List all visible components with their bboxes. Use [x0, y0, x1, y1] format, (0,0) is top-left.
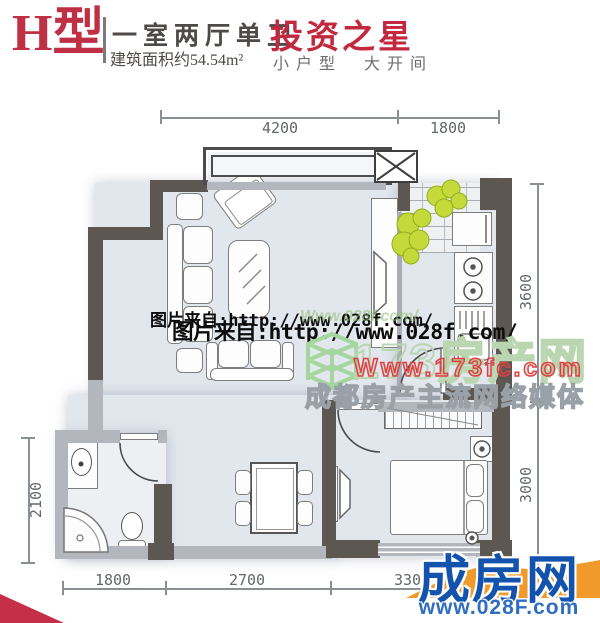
wall-pier	[326, 540, 380, 558]
sub-slogan: 小户型大开间	[273, 50, 455, 74]
pillow	[466, 500, 484, 533]
sofa-cushion	[183, 266, 213, 304]
site-logo: 成房网 www.028F.com	[398, 540, 600, 623]
bathroom-door-leaf	[120, 433, 158, 440]
wall-right-bedroom	[492, 400, 510, 558]
wall-pier-bathroom	[154, 484, 172, 546]
dim-top-2: 1800	[418, 120, 478, 136]
end-table-top	[176, 193, 203, 220]
wall-bedroom-left	[322, 400, 336, 558]
loveseat-back	[210, 368, 294, 381]
pillow	[466, 464, 484, 497]
wall-left-living	[88, 227, 103, 382]
dim-right-1: 3600	[518, 262, 534, 322]
bathroom-wall-top	[158, 430, 167, 443]
dim-tick	[165, 581, 167, 595]
header-divider	[103, 17, 106, 63]
wall-bottom	[55, 546, 332, 559]
dining-chair	[235, 470, 251, 495]
dim-tick	[397, 110, 399, 124]
dining-chair	[297, 501, 313, 526]
unit-type-label: H型	[12, 8, 104, 60]
dim-bottom-2: 2700	[217, 572, 277, 588]
sofa-cushion	[183, 226, 213, 264]
stove	[454, 252, 493, 304]
dim-tick	[62, 581, 64, 595]
page-corner-accent	[0, 594, 64, 623]
logo-url: www.028F.com	[408, 596, 590, 620]
toilet-bowl	[121, 512, 143, 540]
dim-right-2: 3000	[518, 455, 534, 515]
dim-tick	[498, 110, 500, 124]
area-label: 建筑面积约54.54m²	[110, 46, 243, 70]
dining-chair	[297, 470, 313, 495]
end-table-bottom	[176, 348, 203, 373]
dim-tick	[330, 581, 332, 595]
bay-window-sill	[207, 182, 386, 190]
dim-tick	[21, 437, 35, 439]
dim-tick	[21, 562, 35, 564]
washbasin-bowl	[71, 448, 92, 476]
dim-tick	[160, 110, 162, 124]
refrigerator	[452, 212, 492, 246]
dim-top-1: 4200	[250, 120, 310, 136]
dining-table-top	[256, 468, 294, 530]
window-left	[88, 380, 103, 436]
bay-window-inner	[211, 155, 384, 177]
flue-shaft	[374, 150, 418, 183]
wall-segment	[398, 183, 410, 211]
floorplan-page: H型 一室两厅单卫 建筑面积约54.54m² 投资之星 小户型大开间	[0, 0, 600, 623]
watermark-tagline: 成都房产主流网络媒体	[305, 377, 585, 414]
dining-table	[250, 462, 298, 534]
dim-bottom-1: 1800	[83, 572, 143, 588]
dim-left-1: 2100	[28, 470, 44, 530]
sub-slogan-left: 小户型	[273, 56, 342, 73]
sub-slogan-right: 大开间	[364, 56, 433, 73]
dining-chair	[235, 501, 251, 526]
bathroom-wall-left	[55, 430, 68, 558]
dim-tick	[530, 183, 544, 185]
nightstand	[470, 436, 494, 462]
